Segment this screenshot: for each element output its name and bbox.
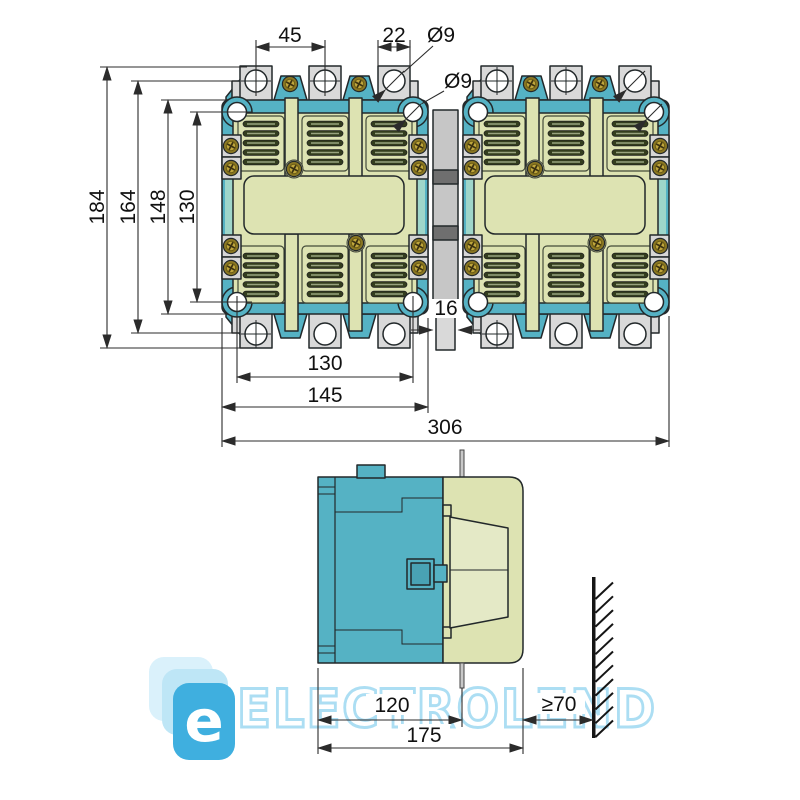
arc-chute (450, 517, 508, 628)
dim-wall-clearance: ≥70 (542, 693, 577, 716)
back-step-top (443, 505, 451, 516)
contactor-unit-left (222, 66, 428, 348)
logo-letter: e (184, 687, 223, 755)
dim-total-height: 184 (86, 189, 109, 224)
aux-latch (434, 565, 447, 582)
hatch-line (596, 624, 614, 641)
dim-total-width: 306 (427, 416, 462, 439)
top-tab (357, 465, 385, 478)
dim-terminal-pitch: 45 (278, 24, 301, 47)
hatch-line (596, 652, 614, 669)
actuator-rod-top (460, 450, 464, 478)
side-view (318, 450, 523, 688)
dim-step-height: 164 (117, 189, 140, 224)
wall-line (592, 577, 596, 738)
dim-terminal-hole: Ø9 (427, 24, 455, 47)
hatch-line (596, 610, 614, 627)
hatch-line (596, 583, 614, 600)
dim-unit-width: 145 (307, 384, 342, 407)
dim-link-width: 16 (434, 297, 457, 320)
actuator-rod-bottom (460, 663, 464, 688)
dim-frame-height: 148 (147, 189, 170, 224)
leader-mounting-hole (422, 91, 445, 104)
dim-mounting-height: 130 (176, 189, 199, 224)
screenshot-root: e ELECTROLEND (0, 0, 800, 800)
dim-total-depth: 175 (406, 724, 441, 747)
hatch-line (596, 638, 614, 655)
dim-mounting-hole: Ø9 (444, 70, 472, 93)
dim-terminal-width: 22 (382, 24, 405, 47)
dim-mounting-depth: 120 (374, 694, 409, 717)
leader-terminal-hole (404, 46, 434, 73)
contactor-unit-right (463, 66, 669, 348)
aux-block-inner (411, 563, 430, 585)
dim-mounting-width: 130 (307, 352, 342, 375)
hatch-line (596, 596, 614, 613)
technical-drawing: e ELECTROLEND (0, 0, 800, 800)
